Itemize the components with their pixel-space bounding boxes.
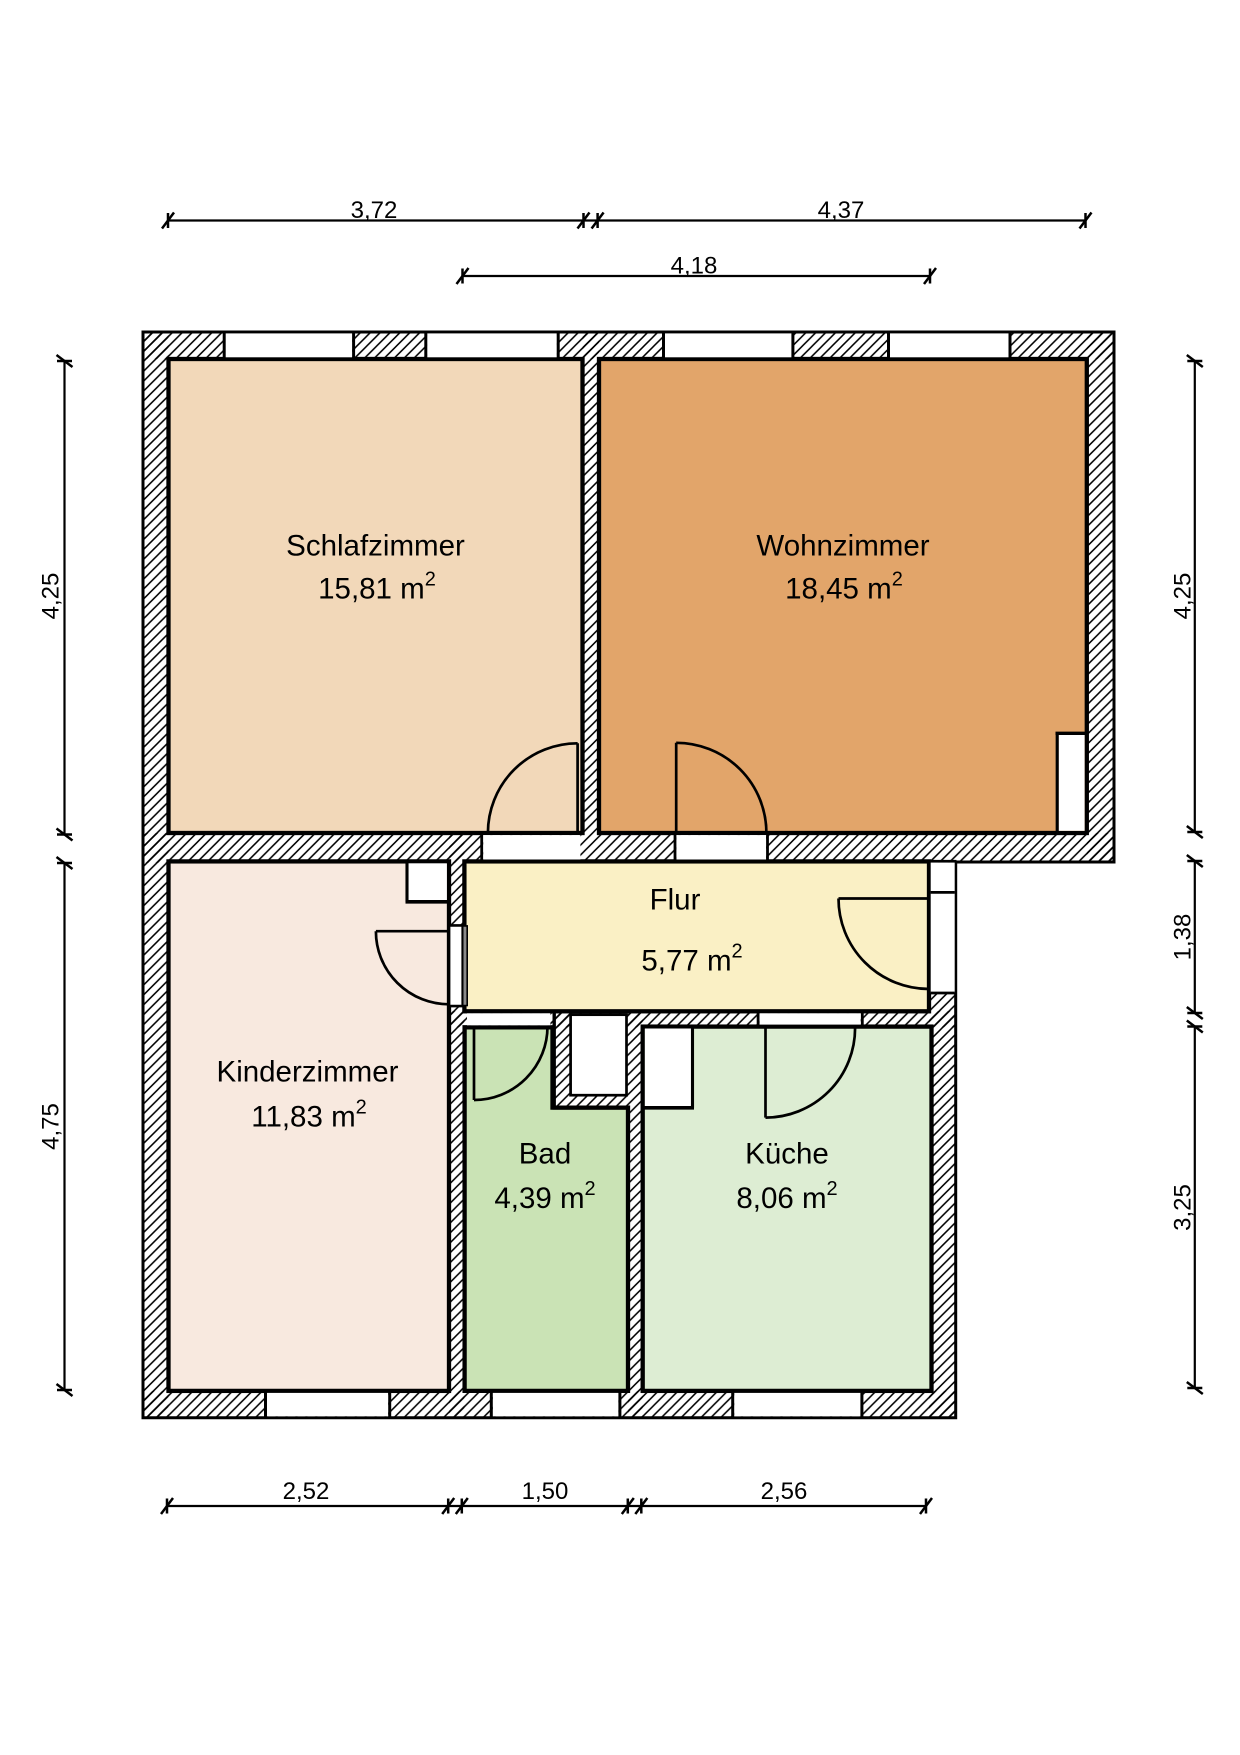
svg-text:1,38: 1,38 [1170, 914, 1197, 961]
svg-text:Flur: Flur [650, 884, 701, 917]
svg-text:4,39 m2: 4,39 m2 [494, 1178, 595, 1215]
svg-text:3,25: 3,25 [1170, 1184, 1197, 1231]
svg-text:15,81 m2: 15,81 m2 [318, 569, 436, 606]
svg-text:18,45 m2: 18,45 m2 [785, 569, 903, 606]
svg-text:Wohnzimmer: Wohnzimmer [756, 530, 929, 563]
svg-text:3,72: 3,72 [351, 197, 398, 224]
svg-text:4,25: 4,25 [38, 573, 65, 620]
svg-text:Küche: Küche [745, 1138, 829, 1171]
svg-text:11,83 m2: 11,83 m2 [251, 1097, 367, 1134]
svg-text:2,56: 2,56 [761, 1478, 808, 1505]
svg-text:1,50: 1,50 [522, 1478, 569, 1505]
svg-text:4,75: 4,75 [38, 1103, 65, 1150]
svg-text:4,37: 4,37 [818, 197, 865, 224]
svg-text:Kinderzimmer: Kinderzimmer [217, 1056, 399, 1089]
svg-text:2,52: 2,52 [283, 1478, 330, 1505]
svg-text:4,25: 4,25 [1170, 573, 1197, 620]
svg-text:Schlafzimmer: Schlafzimmer [286, 530, 465, 563]
svg-text:Bad: Bad [519, 1138, 572, 1171]
svg-text:8,06 m2: 8,06 m2 [736, 1178, 837, 1215]
svg-text:4,18: 4,18 [671, 253, 718, 280]
svg-text:5,77 m2: 5,77 m2 [641, 941, 742, 978]
